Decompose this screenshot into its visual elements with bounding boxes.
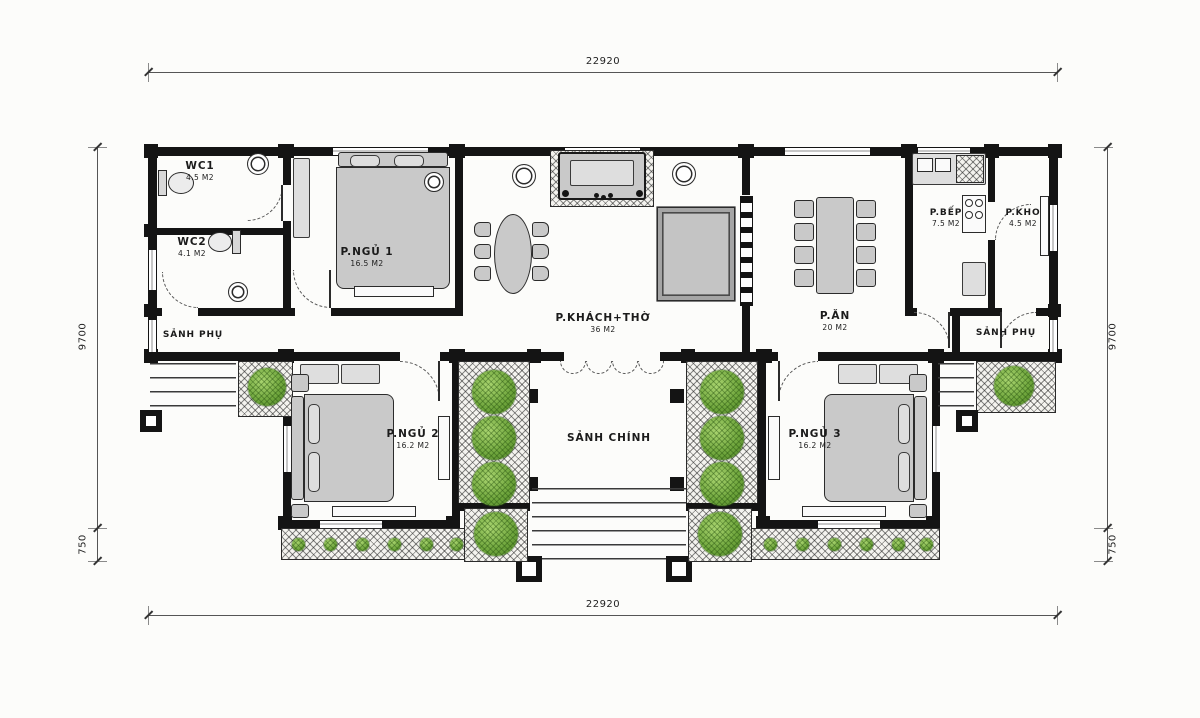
- wall-side-hall-right: [952, 316, 960, 361]
- dim-label-right-porch: 750: [1108, 523, 1119, 567]
- pillow: [350, 155, 380, 167]
- chair: [474, 266, 491, 281]
- decor-pot-icon: [672, 162, 696, 186]
- sink-icon: [935, 158, 951, 172]
- plant-icon: [420, 538, 433, 551]
- chair: [794, 269, 814, 287]
- toilet-icon: [232, 230, 241, 254]
- wall-bedroom2-top: [291, 352, 400, 361]
- door-leaf: [281, 185, 283, 221]
- door-opening: [1050, 320, 1057, 352]
- wall-bedroom3-top: [818, 352, 932, 361]
- door-arc-bedroom2: [400, 361, 440, 401]
- plant-icon: [764, 538, 777, 551]
- wall-wc2-bottom: [198, 308, 291, 316]
- nightstand: [909, 374, 927, 392]
- wall-band-bottom: [932, 352, 1058, 361]
- bed-bench: [354, 286, 434, 297]
- dim-line-top: [148, 72, 1058, 73]
- wall-bedroom1-bottom: [283, 308, 295, 316]
- chair: [856, 246, 876, 264]
- cabinet-knob: [594, 193, 599, 198]
- room-name: P.NGỦ 2: [368, 428, 458, 440]
- window: [284, 426, 291, 472]
- cabinet-knob: [601, 195, 606, 200]
- column-base: [140, 410, 162, 432]
- wall-pier: [984, 144, 999, 158]
- room-name: P.KHÁCH+THỜ: [540, 312, 666, 324]
- shelf-divider: [740, 196, 753, 306]
- plant-icon: [700, 416, 744, 460]
- room-name: SẢNH CHÍNH: [550, 432, 668, 444]
- wall-living-left: [455, 147, 463, 316]
- room-area: 16.2 M2: [368, 441, 458, 450]
- dim-line-bottom: [148, 615, 1058, 616]
- plant-icon: [324, 538, 337, 551]
- chair: [794, 223, 814, 241]
- entrance-steps: [532, 488, 686, 562]
- plant-icon: [450, 538, 463, 551]
- plant-icon: [828, 538, 841, 551]
- room-label-storage: P.KHO 4.5 M2: [992, 208, 1054, 228]
- burner-icon: [965, 199, 973, 207]
- room-name: P.BẾP: [908, 208, 984, 218]
- wall-living-dining: [742, 306, 750, 352]
- room-name: SẢNH PHỤ: [152, 330, 234, 340]
- bed-bench: [332, 506, 416, 517]
- wall-bedroom1-bottom: [331, 308, 463, 316]
- room-area: 4.1 M2: [152, 249, 232, 258]
- wall-pier: [278, 144, 294, 158]
- door-arc-dining-hall: [914, 312, 950, 348]
- door-leaf: [778, 361, 780, 401]
- burner-icon: [975, 199, 983, 207]
- bed-headboard: [914, 396, 927, 500]
- room-name: WC1: [160, 160, 240, 172]
- oval-table: [494, 214, 532, 294]
- wall-band-bottom: [683, 352, 763, 361]
- pilaster: [670, 389, 684, 403]
- wardrobe-bedroom1: [293, 158, 310, 238]
- window: [320, 521, 382, 528]
- plant-icon: [388, 538, 401, 551]
- room-label-side-hall-right: SẢNH PHỤ: [964, 328, 1048, 338]
- pillow: [394, 155, 424, 167]
- bed-headboard: [291, 396, 304, 500]
- dim-label-right-main: 9700: [1108, 315, 1119, 359]
- door-arc-wc1: [247, 185, 283, 221]
- chair: [856, 223, 876, 241]
- room-label-wc1: WC1 4.5 M2: [160, 160, 240, 182]
- dim-label-top: 22920: [555, 56, 651, 67]
- room-area: 16.5 M2: [312, 259, 422, 268]
- chair: [856, 269, 876, 287]
- window: [933, 426, 940, 472]
- side-steps-right: [938, 363, 974, 413]
- plant-icon: [248, 368, 286, 406]
- room-name: SẢNH PHỤ: [964, 328, 1048, 338]
- column-base: [956, 410, 978, 432]
- wall-pier: [756, 349, 772, 363]
- plant-icon: [698, 512, 742, 556]
- room-label-bedroom1: P.NGỦ 1 16.5 M2: [312, 246, 422, 268]
- room-name: P.ĂN: [795, 310, 875, 322]
- wall-band-bottom: [148, 352, 291, 361]
- pillow: [898, 452, 910, 492]
- wall-kitchen-storage: [988, 240, 995, 308]
- altar-cabinet-top: [570, 160, 634, 186]
- window: [818, 521, 880, 528]
- room-area: 16.2 M2: [770, 441, 860, 450]
- bedside-lamp-icon: [424, 172, 444, 192]
- floor-plan: 22920 22920 9700 750 9700 750: [0, 0, 1200, 718]
- room-name: P.NGỦ 3: [770, 428, 860, 440]
- plant-icon: [920, 538, 933, 551]
- wall-pier: [1048, 144, 1062, 158]
- door-leaf: [438, 361, 440, 401]
- plant-icon: [472, 462, 516, 506]
- wall-pier: [928, 349, 944, 363]
- window: [785, 148, 870, 155]
- sink-icon: [917, 158, 933, 172]
- chair: [474, 244, 491, 259]
- door-arc-wc2: [162, 272, 198, 308]
- folding-door-arc: [638, 361, 664, 374]
- room-label-dining: P.ĂN 20 M2: [795, 310, 875, 332]
- room-label-bedroom3: P.NGỦ 3 16.2 M2: [770, 428, 860, 450]
- room-label-side-hall-left: SẢNH PHỤ: [152, 330, 234, 340]
- dining-table: [816, 197, 854, 294]
- nightstand: [291, 374, 309, 392]
- wall-pier: [738, 144, 754, 158]
- fridge-icon: [956, 155, 984, 183]
- room-label-main-hall: SẢNH CHÍNH: [550, 432, 668, 444]
- pillow: [308, 404, 320, 444]
- cabinet-knob: [608, 193, 613, 198]
- room-label-kitchen: P.BẾP 7.5 M2: [908, 208, 984, 228]
- room-area: 4.5 M2: [992, 219, 1054, 228]
- sink-icon: [247, 153, 269, 175]
- wall-right-section-bottom: [950, 308, 1002, 316]
- room-area: 4.5 M2: [160, 173, 240, 182]
- door-arc-bedroom1: [293, 270, 331, 308]
- folding-door-arc: [586, 361, 612, 374]
- chair: [474, 222, 491, 237]
- wardrobe-bedroom2: [341, 364, 380, 384]
- nightstand: [291, 504, 309, 518]
- chair: [856, 200, 876, 218]
- plant-icon: [472, 416, 516, 460]
- door-leaf: [948, 312, 950, 348]
- cabinet-foot: [562, 190, 569, 197]
- folding-door-arc: [560, 361, 586, 374]
- bed-bench: [802, 506, 886, 517]
- room-label-bedroom2: P.NGỦ 2 16.2 M2: [368, 428, 458, 450]
- chair: [532, 266, 549, 281]
- pillow: [308, 452, 320, 492]
- chair: [532, 222, 549, 237]
- room-label-wc2: WC2 4.1 M2: [152, 236, 232, 258]
- wall-pier: [1048, 304, 1061, 317]
- dim-label-left-porch: 750: [78, 523, 89, 567]
- wall-pier: [144, 304, 157, 317]
- plant-icon: [700, 370, 744, 414]
- dim-label-left-main: 9700: [78, 315, 89, 359]
- wardrobe-bedroom3: [838, 364, 877, 384]
- nightstand: [909, 504, 927, 518]
- room-name: WC2: [152, 236, 232, 248]
- door-arc-bedroom3: [778, 361, 818, 401]
- plant-icon: [474, 512, 518, 556]
- room-name: P.KHO: [992, 208, 1054, 218]
- wall-pier: [449, 144, 465, 158]
- plant-icon: [700, 462, 744, 506]
- room-area: 20 M2: [795, 323, 875, 332]
- cabinet-foot: [636, 190, 643, 197]
- sink-icon: [228, 282, 248, 302]
- plant-icon: [472, 370, 516, 414]
- chair: [532, 244, 549, 259]
- plant-icon: [292, 538, 305, 551]
- plant-icon: [860, 538, 873, 551]
- wall-pier: [144, 144, 158, 158]
- kitchen-cabinet: [962, 262, 986, 296]
- dim-line-left: [97, 147, 98, 562]
- dim-label-bottom: 22920: [555, 599, 651, 610]
- room-name: P.NGỦ 1: [312, 246, 422, 258]
- worship-rug: [658, 208, 734, 300]
- room-area: 36 M2: [540, 325, 666, 334]
- chair: [794, 200, 814, 218]
- decor-pot-icon: [512, 164, 536, 188]
- side-steps-left: [150, 363, 236, 419]
- plant-icon: [892, 538, 905, 551]
- plant-icon: [796, 538, 809, 551]
- wall-wc-right: [283, 221, 291, 308]
- plant-icon: [356, 538, 369, 551]
- wall-bedroom3-left: [758, 361, 766, 528]
- folding-door-arc: [612, 361, 638, 374]
- room-label-living: P.KHÁCH+THỜ 36 M2: [540, 312, 666, 334]
- wall-band-bottom: [455, 352, 535, 361]
- chair: [794, 246, 814, 264]
- pillow: [898, 404, 910, 444]
- room-area: 7.5 M2: [908, 219, 984, 228]
- plant-icon: [994, 366, 1034, 406]
- door-leaf: [329, 270, 331, 308]
